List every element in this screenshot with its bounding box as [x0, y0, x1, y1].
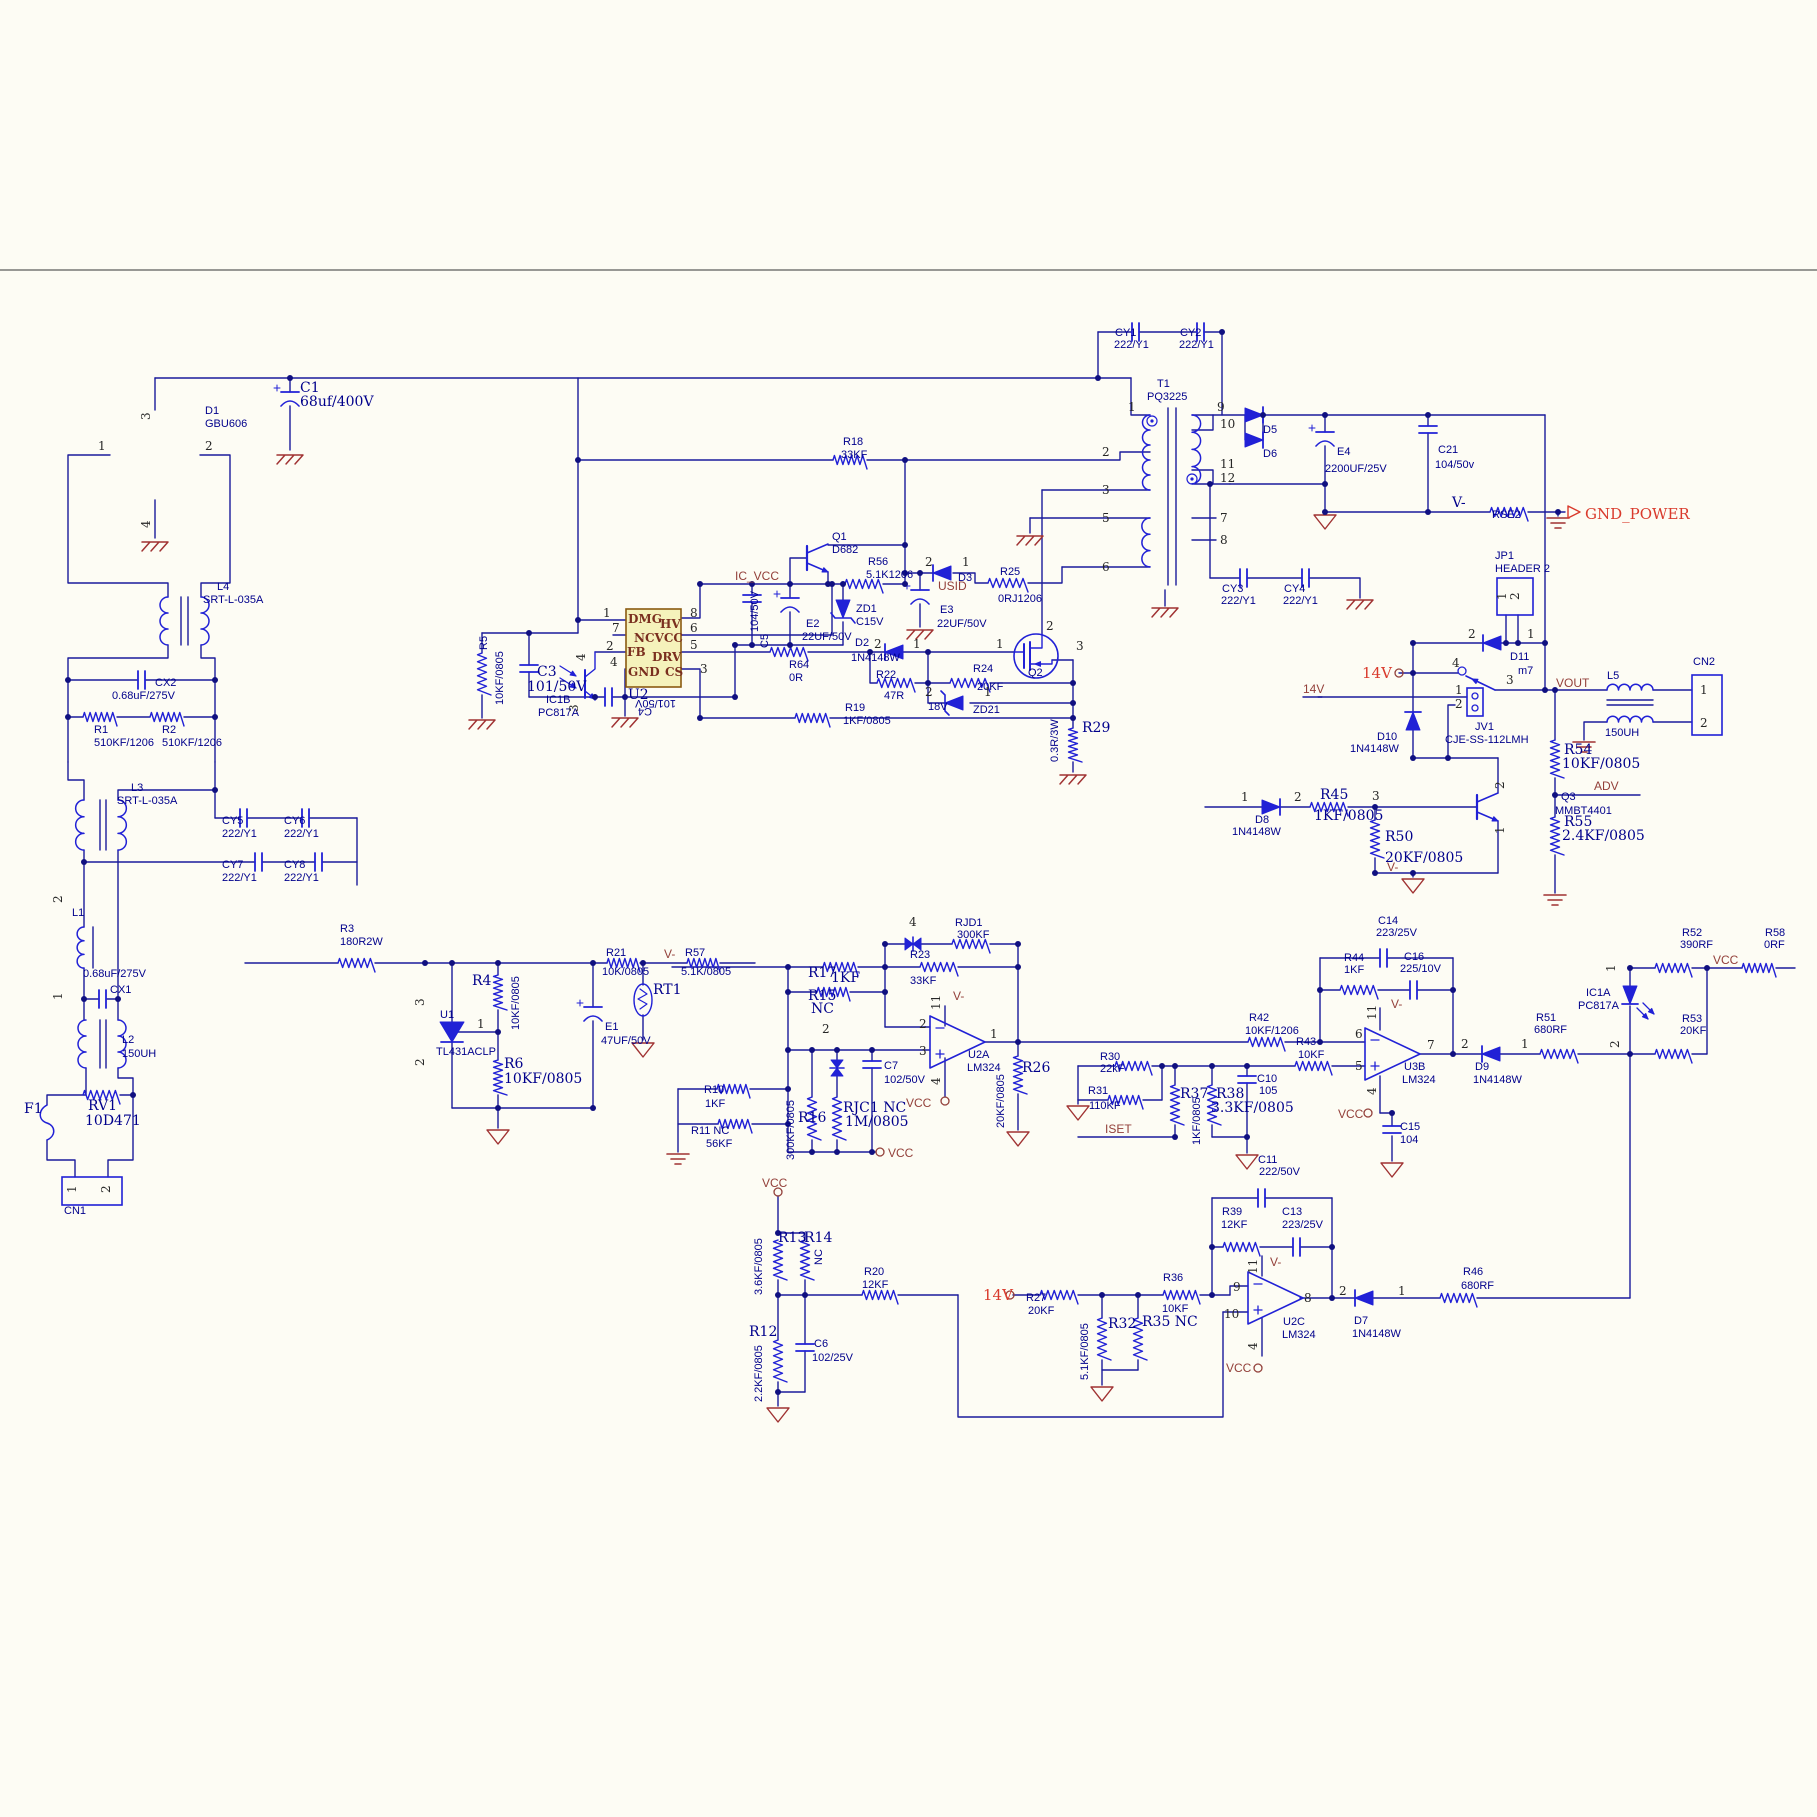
label-l5-val: 150UH	[1605, 727, 1639, 739]
label-u2-pin-cs: CS	[665, 665, 683, 679]
label-r11-val: 56KF	[706, 1138, 733, 1150]
label-u3b-p7: 7	[1427, 1038, 1435, 1052]
label-u2c-ref: U2C	[1283, 1316, 1305, 1328]
label-l5-ref: L5	[1607, 670, 1619, 682]
label-u1-val: TL431ACLP	[436, 1046, 496, 1058]
label-u2-n7: 7	[612, 621, 620, 635]
label-r39-val: 12KF	[1221, 1219, 1248, 1231]
label-f1-ref: F1	[24, 1101, 43, 1117]
label-r32-ref: R32	[1108, 1316, 1136, 1332]
label-c6-val: 102/25V	[812, 1352, 854, 1364]
label-cx1-val: 0.68uF/275V	[83, 968, 147, 980]
label-r58-val: 0RF	[1764, 939, 1785, 951]
schematic-canvas: D1GBU6063124C168uf/400VL4SRT-L-035ACX20.…	[0, 0, 1817, 1817]
label-r15-val: NC	[811, 1001, 834, 1017]
label-jv1-ref: JV1	[1475, 721, 1494, 733]
label-d1-val: GBU606	[205, 418, 247, 430]
label-r43-ref: R43	[1296, 1036, 1316, 1048]
label-u2-n6: 6	[690, 621, 698, 635]
label-d11-ref: D11	[1510, 651, 1529, 663]
label-r5-ref: R5	[478, 636, 490, 650]
label-c14-val: 223/25V	[1376, 927, 1418, 939]
label-net-vcc-1: VCC	[1713, 953, 1739, 967]
label-r31-val: 110KF	[1089, 1100, 1121, 1112]
label-t1-p10: 10	[1220, 417, 1235, 431]
label-l2-ref: L2	[122, 1034, 134, 1046]
label-c16-val: 225/10V	[1400, 963, 1442, 975]
label-cy7-ref: CY7	[222, 859, 243, 871]
label-r4-ref: R4	[472, 973, 492, 989]
label-r5-val: 10KF/0805	[494, 651, 506, 705]
label-cn2-ref: CN2	[1693, 656, 1715, 668]
label-d1-pin2: 2	[205, 439, 213, 453]
label-d1-pin4: 4	[139, 520, 153, 528]
label-u2a-p11: 11	[929, 995, 943, 1010]
label-cn1-ref: CN1	[64, 1205, 86, 1217]
label-net-iset: ISET	[1105, 1122, 1132, 1136]
label-d1-ref: D1	[205, 405, 219, 417]
label-d2-ref: D2	[855, 637, 869, 649]
label-r14-ref: R14	[804, 1230, 832, 1246]
label-d2-val: 1N4148W	[851, 652, 901, 664]
label-t1-p3: 3	[1102, 483, 1110, 497]
label-u2-n3: 3	[700, 662, 708, 676]
label-u3b-vminus: V-	[1391, 997, 1402, 1011]
label-r23-ref: R23	[910, 949, 930, 961]
label-c15-ref: C15	[1400, 1121, 1420, 1133]
label-zd1-val: C15V	[856, 616, 884, 628]
label-d8-val: 1N4148W	[1232, 826, 1282, 838]
label-cy5-ref: CY5	[222, 815, 243, 827]
label-r16-val: 300KF/0805	[785, 1100, 797, 1160]
label-cy1-val: 222/Y1	[1114, 339, 1149, 351]
label-u2-pin-fb: FB	[627, 645, 646, 659]
label-r16-ref: R16	[798, 1110, 826, 1126]
label-t1-p2: 2	[1102, 445, 1110, 459]
label-r12-ref: R12	[749, 1324, 777, 1340]
label-r45-val: 1KF/0805	[1314, 808, 1383, 824]
label-c1-val: 68uf/400V	[300, 394, 374, 410]
label-r44-ref: R44	[1344, 952, 1364, 964]
label-rjc1-val: 1M/0805	[845, 1114, 909, 1130]
label-r56-val: 5.1K1206	[866, 569, 913, 581]
label-rv1-val: 10D471	[85, 1113, 141, 1129]
label-net-gndpower: GND_POWER	[1585, 505, 1690, 523]
label-u2-pin-hv: HV	[660, 617, 681, 631]
label-r20-ref: R20	[864, 1266, 884, 1278]
label-zd21-p1: 1	[984, 685, 992, 699]
label-r45-ref: R45	[1320, 787, 1348, 803]
label-r31-ref: R31	[1088, 1085, 1108, 1097]
label-cn1-pin1: 1	[65, 1185, 79, 1193]
label-r4-val: 10KF/0805	[510, 976, 522, 1030]
label-ic1a-p2: 2	[1608, 1040, 1622, 1048]
label-r37-val: 1KF/0805	[1191, 1097, 1203, 1145]
label-cy4-ref: CY4	[1284, 583, 1305, 595]
label-q2-p2: 2	[1046, 619, 1054, 633]
label-r19-ref: R19	[845, 702, 865, 714]
label-cx2-ref: CX2	[155, 677, 176, 689]
label-r53-ref: R53	[1682, 1013, 1702, 1025]
label-d8-p2: 2	[1294, 790, 1302, 804]
label-r2-ref: R2	[162, 724, 176, 736]
label-q3-pc: 2	[1493, 781, 1507, 789]
label-t1-val: PQ3225	[1147, 391, 1187, 403]
label-r30-ref: R30	[1100, 1051, 1120, 1063]
label-c14-ref: C14	[1378, 915, 1398, 927]
label-u2a-vminus: V-	[953, 989, 964, 1003]
label-d1-pin3: 3	[139, 412, 153, 420]
label-net-vcc-2: VCC	[888, 1146, 914, 1160]
label-t1-p5: 5	[1102, 511, 1110, 525]
label-c11-ref: C11	[1258, 1154, 1277, 1166]
label-r21-val: 10K/0805	[602, 966, 649, 978]
label-r13-ref: R13	[778, 1230, 806, 1246]
label-rse2-ref: RSE2	[1492, 509, 1521, 521]
label-u2c-vcc: VCC	[1226, 1361, 1252, 1375]
label-r14-val: NC	[813, 1249, 825, 1265]
label-rjd1-p4: 4	[909, 915, 917, 929]
label-q3-pe: 1	[1493, 826, 1507, 834]
label-d3-ref: D3	[958, 572, 972, 584]
label-r57-ref: R57	[685, 947, 705, 959]
label-l2-val: 150UH	[122, 1048, 156, 1060]
label-c16-ref: C16	[1404, 951, 1424, 963]
label-r58-ref: R58	[1765, 927, 1785, 939]
label-r25-val: 0RJ1206	[998, 593, 1042, 605]
label-ic1b-pin4: 4	[574, 653, 588, 661]
label-r24-ref: R24	[973, 663, 993, 675]
label-u2-pin-drv: DRV	[652, 650, 682, 664]
label-c13-ref: C13	[1282, 1206, 1302, 1218]
label-rjd1-ref: RJD1	[955, 917, 983, 929]
label-r1-val: 510KF/1206	[94, 737, 154, 749]
label-u1-p3: 3	[413, 998, 427, 1006]
label-cx1-ref: CX1	[110, 984, 131, 996]
label-e2-val: 22UF/50V	[802, 631, 852, 643]
label-u2c-p4: 4	[1246, 1342, 1260, 1350]
label-u2-pin-gnd: GND	[628, 665, 660, 679]
label-net-14v-3: 14V	[983, 1286, 1014, 1304]
label-r10-ref: R10	[704, 1084, 724, 1096]
label-e1-val: 47UF/50V	[601, 1035, 651, 1047]
label-q3-ref: Q3	[1561, 791, 1576, 803]
label-l4-ref: L4	[217, 581, 229, 593]
label-t1-p1: 1	[1128, 400, 1136, 414]
label-u2-pin-dmg: DMG	[628, 612, 662, 626]
label-r29-val: 0.3R/3W	[1049, 719, 1061, 762]
label-u2c-p8: 8	[1304, 1291, 1312, 1305]
label-r1-ref: R1	[94, 724, 108, 736]
label-net-icvcc: IC_VCC	[735, 569, 779, 583]
label-c5-ref: C5	[759, 634, 771, 648]
label-d11-m7: m7	[1518, 665, 1533, 677]
label-r55-val: 2.4KF/0805	[1562, 828, 1645, 844]
label-c15-val: 104	[1400, 1134, 1418, 1146]
label-q2-p3: 3	[1076, 639, 1084, 653]
label-u2a-p4: 4	[929, 1077, 943, 1085]
label-u2a-p3: 3	[919, 1044, 927, 1058]
label-c7-val: 102/50V	[884, 1074, 926, 1086]
label-d10-val: 1N4148W	[1350, 743, 1400, 755]
label-r3-val: 180R2W	[340, 936, 383, 948]
label-cy8-val: 222/Y1	[284, 872, 319, 884]
label-jv1-p2: 2	[1455, 697, 1463, 711]
label-r2-val: 510KF/1206	[162, 737, 222, 749]
label-d11-p2: 2	[1468, 627, 1476, 641]
label-jv1-p4: 4	[1452, 656, 1460, 670]
label-r3-ref: R3	[340, 923, 354, 935]
label-jv1-p1: 1	[1455, 683, 1463, 697]
label-d2-p2: 2	[874, 637, 882, 651]
label-t1-p11: 11	[1220, 457, 1235, 471]
label-u1-p1: 1	[477, 1017, 485, 1031]
label-r56-ref: R56	[868, 556, 888, 568]
label-q1-val: D682	[832, 544, 858, 556]
label-e4-val: 2200UF/25V	[1325, 463, 1387, 475]
label-ic1b-pin3: 3	[567, 704, 581, 712]
label-r54-val: 10KF/0805	[1562, 756, 1640, 772]
label-d8-ref: D8	[1255, 814, 1269, 826]
label-u2c-vminus: V-	[1270, 1255, 1281, 1269]
label-d9-p2: 2	[1461, 1037, 1469, 1051]
label-r51-ref: R51	[1536, 1012, 1556, 1024]
label-u2a-vcc: VCC	[906, 1096, 932, 1110]
label-r29-ref: R29	[1082, 720, 1110, 736]
label-d1-pin1: 1	[98, 439, 106, 453]
label-r22-val: 47R	[884, 690, 904, 702]
label-c21-ref: C21	[1438, 444, 1458, 456]
label-r18-val: 33KF	[841, 449, 868, 461]
label-net-14v-small: 14V	[1303, 682, 1324, 696]
label-u2c-val: LM324	[1282, 1329, 1316, 1341]
label-d7-p1: 1	[1398, 1284, 1406, 1298]
label-d3-p1: 1	[962, 555, 970, 569]
schematic-page: D1GBU6063124C168uf/400VL4SRT-L-035ACX20.…	[0, 0, 1817, 1817]
label-c7-ref: C7	[884, 1060, 898, 1072]
label-c13-val: 223/25V	[1282, 1219, 1324, 1231]
label-e2-ref: E2	[806, 618, 819, 630]
label-l1-pin1: 1	[51, 992, 65, 1000]
label-r26-val: 20KF/0805	[995, 1074, 1007, 1128]
label-zd21-ref: ZD21	[973, 704, 1000, 716]
label-cy3-val: 222/Y1	[1221, 595, 1256, 607]
label-q1-ref: Q1	[832, 531, 847, 543]
label-c4-ref: C4	[638, 705, 652, 717]
label-r22-ref: R22	[876, 669, 896, 681]
label-c21-val: 104/50v	[1435, 459, 1475, 471]
label-cy8-ref: CY8	[284, 859, 305, 871]
label-r42-val: 10KF/1206	[1245, 1025, 1299, 1037]
label-u2-pin-ncvcc: NCVCC	[634, 631, 683, 645]
label-u3b-p5: 5	[1355, 1059, 1363, 1073]
label-u2-n1: 1	[603, 606, 611, 620]
label-r6-val: 10KF/0805	[504, 1071, 582, 1087]
label-cy6-ref: CY6	[284, 815, 305, 827]
label-net-vout: VOUT	[1556, 676, 1590, 690]
label-u2a-p2: 2	[919, 1017, 927, 1031]
label-cy1-ref: CY1	[1115, 327, 1136, 339]
label-u2c-p11: 11	[1246, 1259, 1260, 1274]
label-u3b-ref: U3B	[1404, 1061, 1425, 1073]
label-l3-ref: L3	[131, 782, 143, 794]
label-l1-pin2: 2	[51, 895, 65, 903]
label-u2-n2: 2	[606, 639, 614, 653]
label-net-vminus-1: V-	[1451, 495, 1466, 511]
label-e3-ref: E3	[940, 604, 953, 616]
label-r32-val: 5.1KF/0805	[1079, 1323, 1091, 1380]
label-t1-p8: 8	[1220, 533, 1228, 547]
label-r11-ref: R11 NC	[691, 1125, 729, 1137]
label-u3b-val: LM324	[1402, 1074, 1436, 1086]
label-r51-val: 680RF	[1534, 1024, 1567, 1036]
label-d7-p2: 2	[1339, 1284, 1347, 1298]
label-net-adv: ADV	[1594, 779, 1619, 793]
label-u2a-p1: 1	[990, 1027, 998, 1041]
label-u2c-p10: 10	[1224, 1307, 1239, 1321]
label-cn2-p1: 1	[1700, 683, 1708, 697]
label-ic1a-val: PC817A	[1578, 1000, 1620, 1012]
label-u2-n4: 4	[610, 655, 618, 669]
label-l3-val: SRT-L-035A	[117, 795, 178, 807]
label-t1-p6: 6	[1102, 560, 1110, 574]
label-r27-val: 20KF	[1028, 1305, 1055, 1317]
label-cy5-val: 222/Y1	[222, 828, 257, 840]
label-u2-n5: 5	[690, 638, 698, 652]
label-jv1-val: CJE-SS-112LMH	[1445, 734, 1529, 746]
label-r20-val: 12KF	[862, 1279, 889, 1291]
label-r64-ref: R64	[789, 659, 809, 671]
label-r36-ref: R36	[1163, 1272, 1183, 1284]
label-jp1-p2: 2	[1508, 592, 1522, 600]
label-net-vminus-2: V-	[1387, 860, 1398, 874]
label-u2a-val: LM324	[967, 1062, 1001, 1074]
label-t1-ref: T1	[1157, 378, 1170, 390]
label-e3-val: 22UF/50V	[937, 618, 987, 630]
label-rv1-ref: RV1	[88, 1098, 117, 1114]
label-net-14v-big: 14V	[1362, 664, 1393, 682]
label-ic1a-ref: IC1A	[1586, 987, 1611, 999]
label-r12-val: 2.2KF/0805	[753, 1345, 765, 1402]
label-rt1-ref: RT1	[653, 982, 682, 998]
label-zd1-ref: ZD1	[856, 603, 877, 615]
label-ic1a-p1: 1	[1604, 964, 1618, 972]
label-cn1-pin2: 2	[99, 1185, 113, 1193]
label-r64-val: 0R	[789, 672, 803, 684]
label-jp1-ref: JP1	[1495, 550, 1514, 562]
label-d11-p1: 1	[1527, 627, 1535, 641]
label-u3b-p6: 6	[1355, 1027, 1363, 1041]
label-q2-ref: Q2	[1028, 667, 1043, 679]
label-r19-val: 1KF/0805	[843, 715, 891, 727]
label-r13-val: 3.6KF/0805	[753, 1238, 765, 1295]
label-c6-ref: C6	[814, 1338, 828, 1350]
label-jp1-val: HEADER 2	[1495, 563, 1550, 575]
label-u2-n8: 8	[690, 606, 698, 620]
label-cy3-ref: CY3	[1222, 583, 1243, 595]
label-u2a-ref: U2A	[968, 1049, 990, 1061]
label-t1-p12: 12	[1220, 471, 1235, 485]
label-u3b-vcc: VCC	[1338, 1107, 1364, 1121]
label-r42-ref: R42	[1249, 1012, 1269, 1024]
label-e4-ref: E4	[1337, 446, 1350, 458]
label-r17-val: 1KF	[831, 970, 860, 986]
label-r26-ref: R26	[1022, 1060, 1050, 1076]
label-r53-val: 20KF	[1680, 1025, 1707, 1037]
label-r35-ref: R35 NC	[1142, 1314, 1198, 1330]
label-d2-p1: 1	[913, 637, 921, 651]
label-d7-val: 1N4148W	[1352, 1328, 1402, 1340]
label-c11-val: 222/50V	[1259, 1166, 1301, 1178]
label-t1-p9: 9	[1217, 400, 1225, 414]
label-d5-ref: D5	[1263, 424, 1277, 436]
label-u2c-p9: 9	[1233, 1280, 1241, 1294]
label-r21-ref: R21	[606, 947, 626, 959]
label-q2-p1: 1	[996, 637, 1004, 651]
label-net-vcc-3: VCC	[762, 1176, 788, 1190]
label-u3b-p11: 11	[1365, 1005, 1379, 1020]
label-r10-val: 1KF	[705, 1098, 725, 1110]
label-r44-val: 1KF	[1344, 964, 1364, 976]
label-cy2-val: 222/Y1	[1179, 339, 1214, 351]
label-d10-ref: D10	[1377, 731, 1397, 743]
label-net-2: 2	[822, 1022, 830, 1036]
label-d8-p1: 1	[1241, 790, 1249, 804]
label-r46-ref: R46	[1463, 1266, 1483, 1278]
label-r43-val: 10KF	[1298, 1049, 1325, 1061]
label-r39-ref: R39	[1222, 1206, 1242, 1218]
label-c5-val: 104/50V	[749, 590, 761, 632]
label-q3-pb: 3	[1372, 789, 1380, 803]
label-d9-val: 1N4148W	[1473, 1074, 1523, 1086]
label-d6-ref: D6	[1263, 448, 1277, 460]
label-r27-ref: R27	[1026, 1292, 1046, 1304]
label-c3-val: 101/50V	[527, 679, 587, 695]
label-r36-val: 10KF	[1162, 1303, 1189, 1315]
label-r57-val: 5.1K/0805	[681, 966, 731, 978]
label-t1-p7: 7	[1220, 511, 1228, 525]
label-cn2-p2: 2	[1700, 716, 1708, 730]
label-r50-ref: R50	[1385, 829, 1413, 845]
label-u3b-p4: 4	[1365, 1087, 1379, 1095]
label-r52-ref: R52	[1682, 927, 1702, 939]
label-d7-ref: D7	[1354, 1315, 1368, 1327]
label-d9-p1: 1	[1521, 1037, 1529, 1051]
label-cy2-ref: CY2	[1180, 327, 1201, 339]
label-u1-p2: 2	[413, 1058, 427, 1066]
label-r6-ref: R6	[504, 1056, 524, 1072]
label-d3-p2: 2	[925, 555, 933, 569]
label-zd21-val: 18V	[928, 701, 948, 713]
label-cy4-val: 222/Y1	[1283, 595, 1318, 607]
label-c10-ref: C10	[1257, 1073, 1277, 1085]
label-c3-ref: C3	[537, 664, 557, 680]
label-cy7-val: 222/Y1	[222, 872, 257, 884]
label-jv1-p3: 3	[1506, 673, 1514, 687]
label-d9-ref: D9	[1475, 1061, 1489, 1073]
label-l4-val: SRT-L-035A	[203, 594, 264, 606]
label-c10-val: 105	[1259, 1085, 1277, 1097]
label-r46-val: 680RF	[1461, 1280, 1494, 1292]
label-zd21-p2: 2	[925, 685, 933, 699]
label-r38-val: 3.3KF/0805	[1211, 1100, 1294, 1116]
label-rjd1-val: 300KF	[957, 929, 990, 941]
label-net-vminus-3: V-	[664, 947, 675, 961]
label-r25-ref: R25	[1000, 566, 1020, 578]
label-cx2-val: 0.68uF/275V	[112, 690, 176, 702]
label-r18-ref: R18	[843, 436, 863, 448]
label-u1-ref: U1	[440, 1009, 454, 1021]
